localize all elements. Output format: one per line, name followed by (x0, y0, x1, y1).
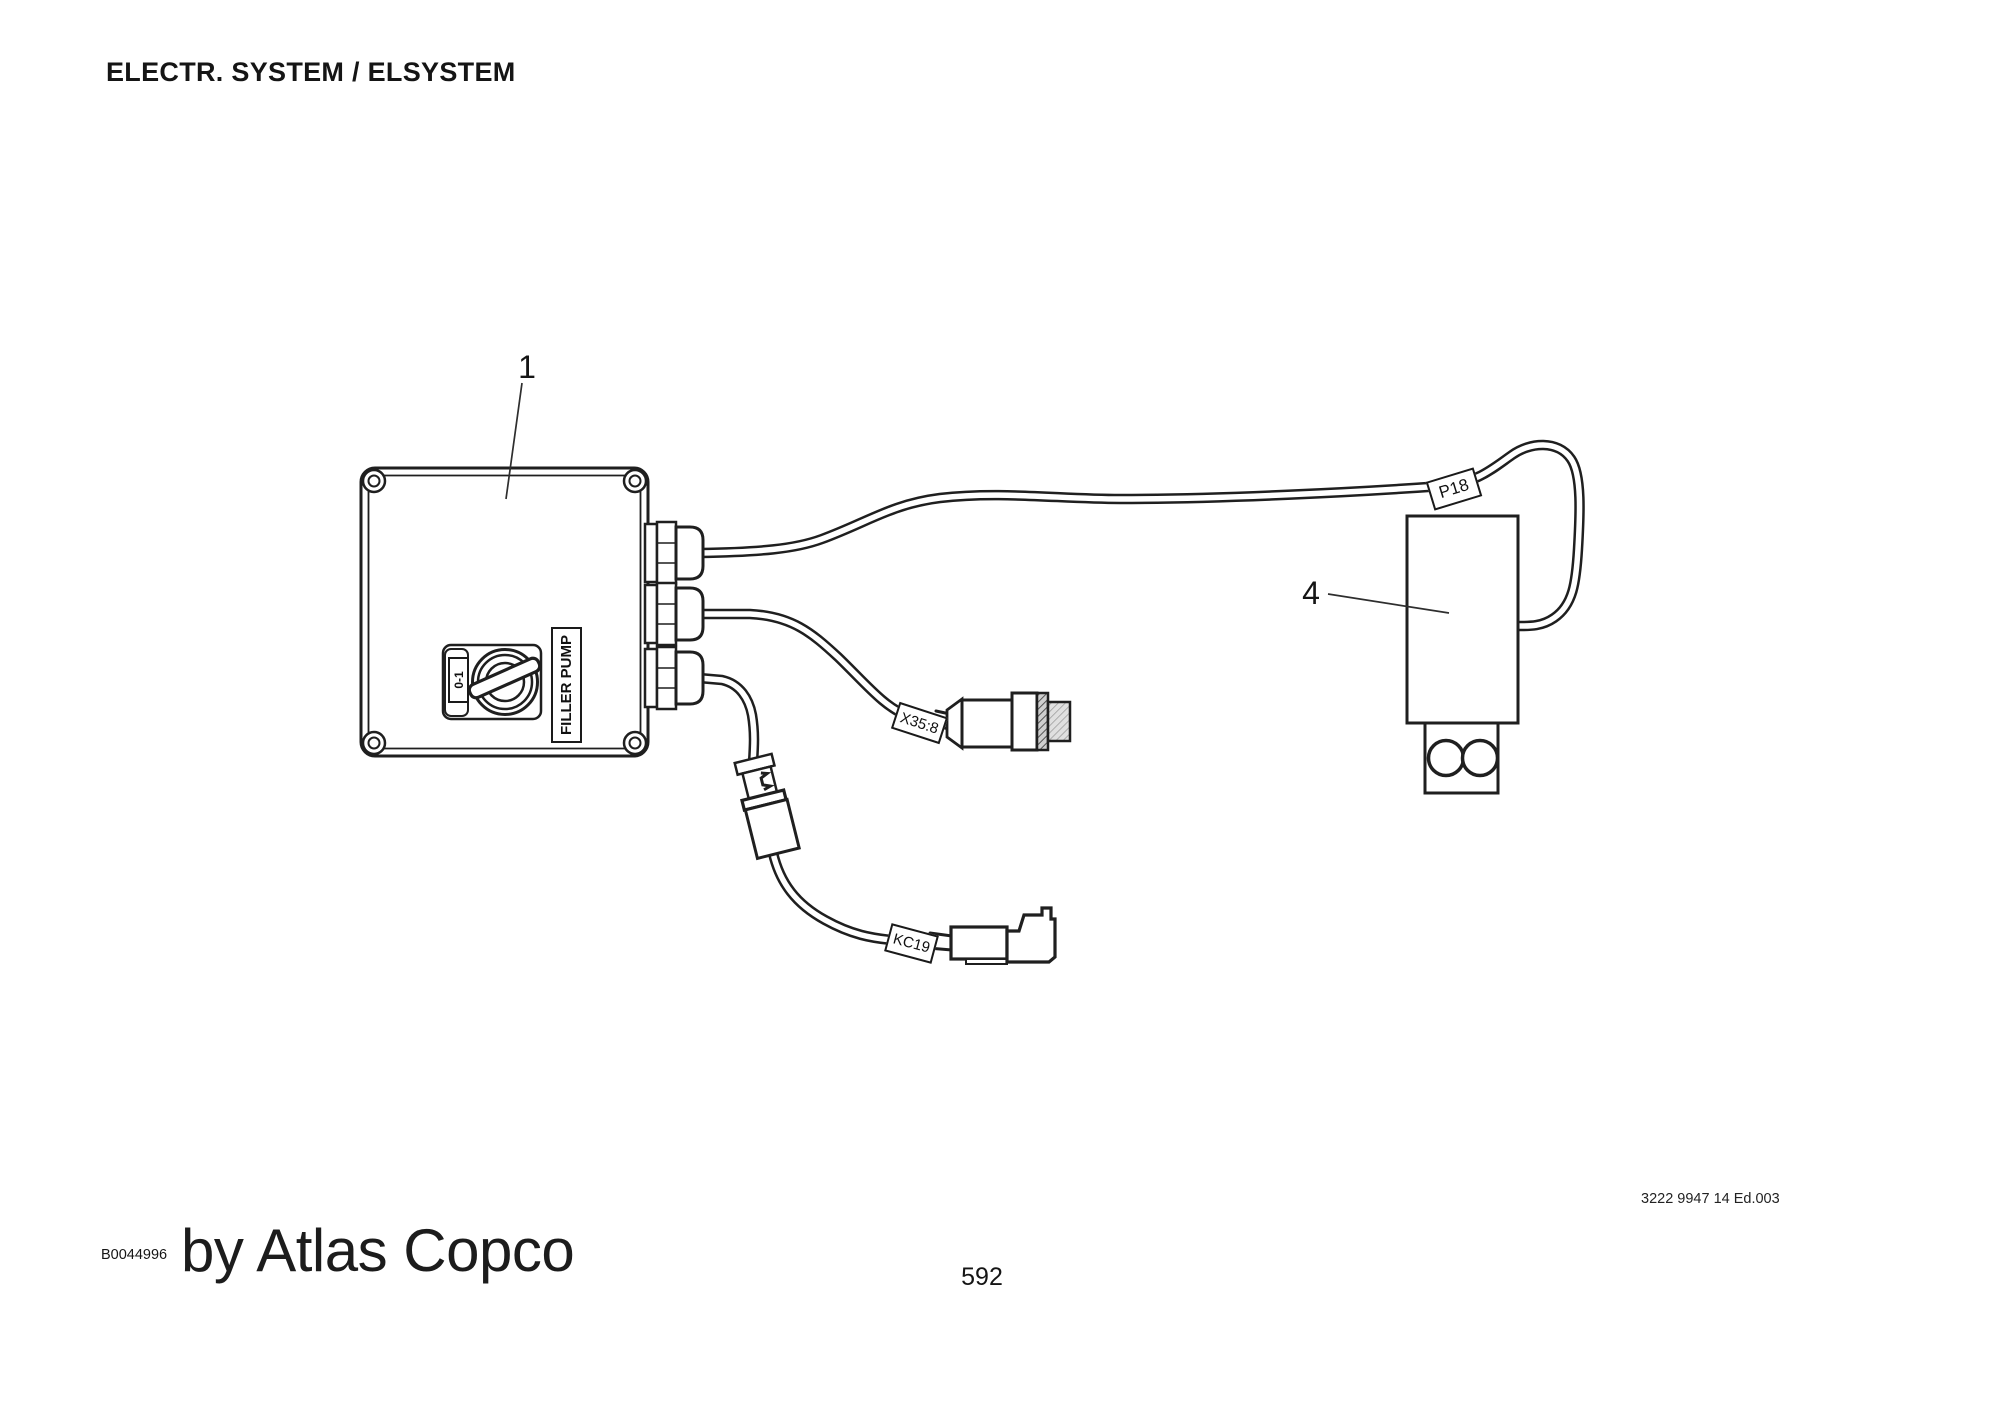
callout-4: 4 (1296, 575, 1326, 612)
sensor-connector-x35 (947, 693, 1070, 750)
page-number: 592 (950, 1263, 1014, 1292)
terminal-hole-icon (1429, 741, 1464, 776)
callout-1: 1 (512, 349, 542, 386)
terminal-hole-icon (1463, 741, 1498, 776)
pump-unit (1407, 516, 1518, 793)
cable-glands (645, 522, 703, 709)
filler-pump-label: FILLER PUMP (551, 627, 582, 743)
inline-connector (733, 753, 799, 859)
brand-line: by Atlas Copco (181, 1216, 574, 1285)
control-box (361, 468, 648, 756)
page-title: ELECTR. SYSTEM / ELSYSTEM (106, 57, 516, 88)
catalog-page: ELECTR. SYSTEM / ELSYSTEM 1 4 P18 X35:8 … (0, 0, 2000, 1414)
switch-position-label: 0-1 (448, 657, 469, 703)
cable-gland (645, 522, 703, 584)
pump-lead-cable (699, 678, 754, 763)
connector-kc19 (951, 908, 1055, 964)
cable-gland (645, 647, 703, 709)
edition-code: 3222 9947 14 Ed.003 (1641, 1191, 1780, 1207)
figure-code: B0044996 (101, 1247, 167, 1263)
cable-gland (645, 583, 703, 645)
wire-stubs (928, 711, 952, 950)
